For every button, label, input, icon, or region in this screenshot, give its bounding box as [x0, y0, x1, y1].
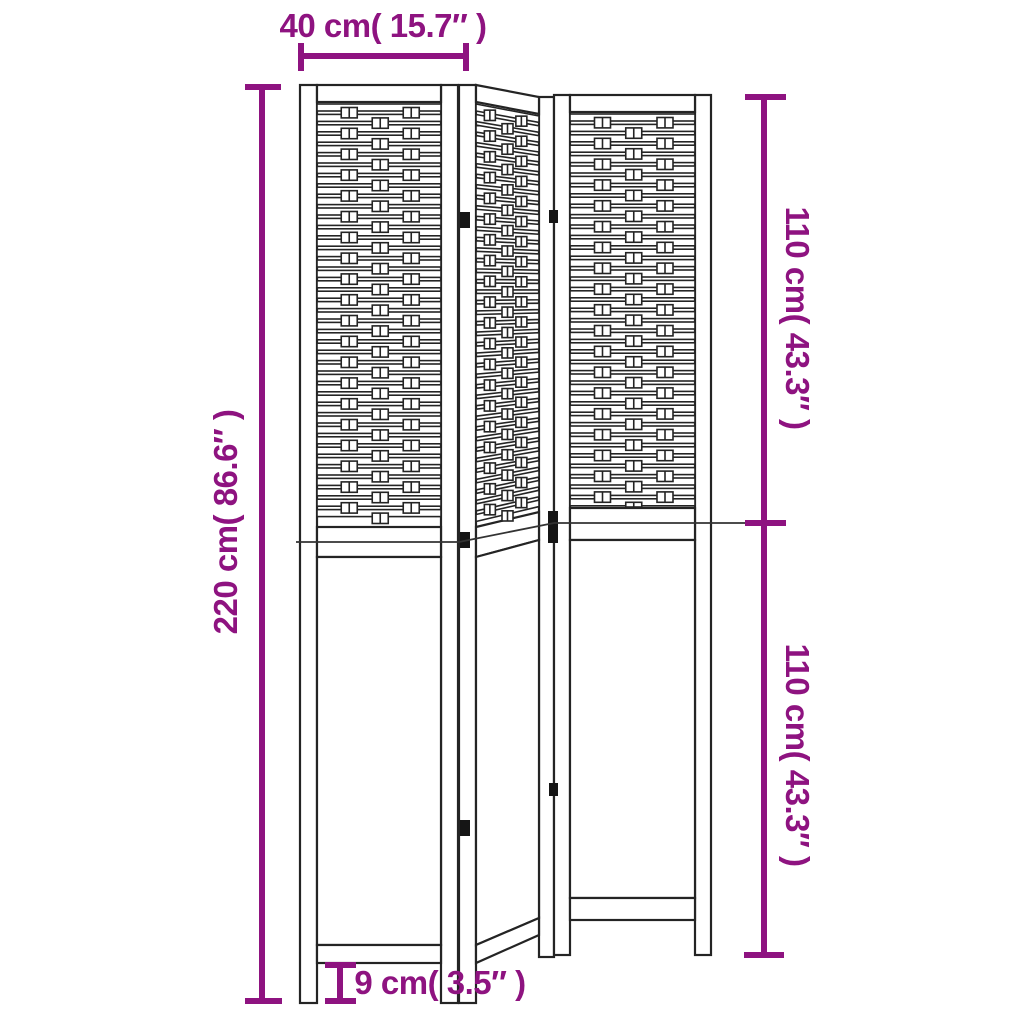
panel-right	[554, 95, 711, 955]
dim-label-upper-section-height: 110 cm( 43.3″ )	[778, 207, 816, 430]
dimension-diagram: 40 cm( 15.7″ ) 220 cm( 86.6″ ) 110 cm( 4…	[0, 0, 1024, 1024]
dim-label-panel-width: 40 cm( 15.7″ )	[280, 7, 487, 45]
dim-label-total-height: 220 cm( 86.6″ )	[207, 410, 245, 635]
panel-left	[300, 85, 458, 1003]
dim-label-foot-height: 9 cm( 3.5″ )	[354, 964, 525, 1002]
dim-label-lower-section-height: 110 cm( 43.3″ )	[778, 644, 816, 867]
room-divider-drawing	[0, 0, 1024, 1024]
panel-middle	[459, 85, 554, 1003]
